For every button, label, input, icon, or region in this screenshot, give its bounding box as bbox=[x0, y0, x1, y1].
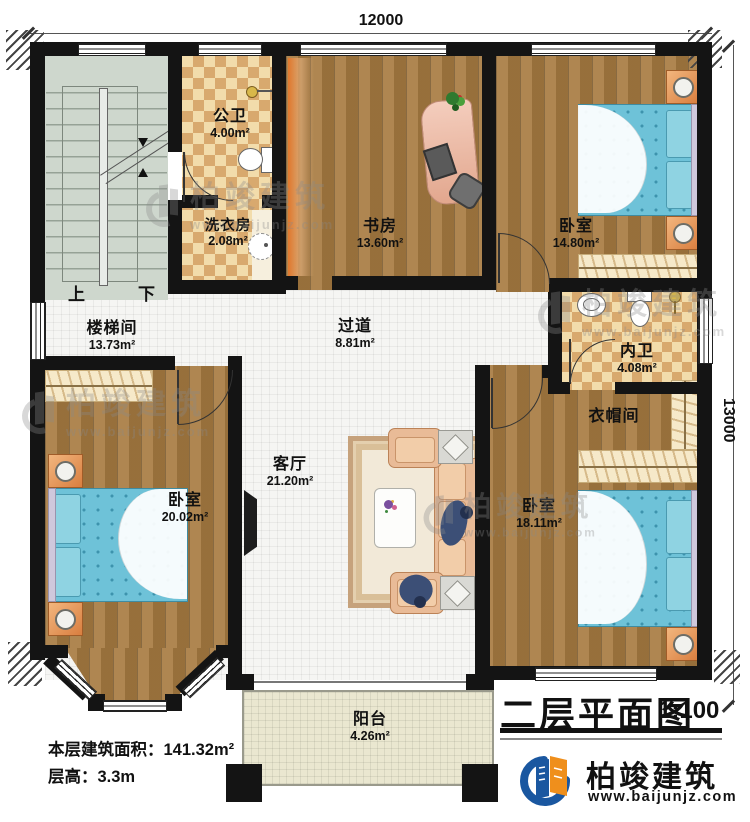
wall bbox=[165, 694, 182, 711]
lamp-icon bbox=[673, 223, 694, 244]
bed-se-pillow bbox=[666, 500, 693, 554]
corner-hatch bbox=[714, 650, 740, 684]
window bbox=[531, 43, 656, 56]
side-table bbox=[438, 430, 473, 464]
door-leaf bbox=[569, 339, 571, 383]
nightstand bbox=[48, 602, 83, 636]
watermark: 柏竣建筑www.baijunjz.com bbox=[538, 290, 726, 339]
watermark-logo-icon bbox=[146, 183, 182, 227]
stair-stringer bbox=[99, 88, 108, 286]
bed-se-pillow bbox=[666, 557, 693, 611]
wall bbox=[615, 382, 697, 394]
wall bbox=[562, 382, 570, 394]
bed-w-pillow bbox=[54, 547, 81, 597]
room-label-bedroom-ne: 卧室14.80m² bbox=[553, 218, 600, 250]
dimension-line-right bbox=[733, 45, 734, 705]
window bbox=[78, 43, 146, 56]
drawing-scale: 1:100 bbox=[658, 697, 719, 725]
person-head bbox=[414, 596, 426, 608]
dimension-top-value: 12000 bbox=[359, 12, 404, 30]
wall bbox=[542, 365, 562, 378]
cloakroom-rack-bottom bbox=[578, 450, 699, 483]
watermark: 柏竣建筑www.baijunjz.com bbox=[146, 183, 334, 232]
door-leaf bbox=[498, 233, 500, 283]
room-label-hallway: 过道8.81m² bbox=[335, 318, 375, 350]
watermark: 柏竣建筑www.baijunjz.com bbox=[424, 494, 597, 539]
column bbox=[462, 764, 498, 802]
floor-height-text: 层高：3.3m bbox=[48, 763, 135, 787]
lamp-icon bbox=[55, 609, 76, 630]
toilet-bowl-icon bbox=[238, 148, 263, 171]
room-label-balcony: 阳台4.26m² bbox=[350, 711, 390, 743]
brand-website: www.baijunjz.com bbox=[588, 789, 737, 805]
brand-logo-icon bbox=[514, 750, 576, 808]
nightstand bbox=[666, 627, 699, 661]
floor-plan-canvas: 上 下 bbox=[0, 0, 750, 822]
bed-ne-pillow bbox=[666, 161, 693, 209]
study-sideboard-glow bbox=[288, 58, 314, 276]
wall bbox=[466, 674, 494, 690]
wall bbox=[30, 356, 175, 370]
table-flowers-icon bbox=[384, 500, 393, 509]
window bbox=[198, 43, 262, 56]
bed-w-headboard bbox=[48, 488, 56, 602]
room-label-study: 书房13.60m² bbox=[357, 218, 404, 250]
wall bbox=[226, 674, 254, 690]
washing-machine-icon bbox=[248, 233, 275, 260]
door-leaf bbox=[491, 378, 493, 428]
room-label-bedroom-w: 卧室20.02m² bbox=[162, 492, 209, 524]
lamp-icon bbox=[673, 634, 694, 655]
window bbox=[103, 700, 167, 712]
title-underline-thin bbox=[500, 738, 722, 740]
stair-arrow-down-icon bbox=[138, 138, 148, 147]
wall bbox=[697, 56, 712, 680]
armchair-top bbox=[388, 428, 442, 468]
bath-lamp-icon bbox=[246, 86, 258, 98]
column bbox=[226, 764, 262, 802]
wall bbox=[182, 280, 272, 294]
dimension-line-top bbox=[30, 33, 712, 34]
side-table bbox=[440, 576, 475, 610]
washer-knob bbox=[264, 243, 268, 247]
plant-icon bbox=[446, 92, 459, 105]
wall bbox=[482, 56, 496, 290]
wall bbox=[168, 56, 182, 152]
lamp-icon bbox=[55, 461, 76, 482]
dimension-right-value: 13000 bbox=[719, 398, 737, 443]
stair-arrow-up-icon bbox=[138, 168, 148, 177]
window bbox=[300, 43, 447, 56]
floor-area-text: 本层建筑面积：141.32m² bbox=[48, 736, 234, 760]
watermark-logo-icon bbox=[424, 494, 457, 534]
wall bbox=[228, 356, 242, 676]
wall bbox=[216, 645, 242, 658]
nightstand bbox=[666, 216, 699, 250]
room-label-public-bath: 公卫4.00m² bbox=[210, 108, 250, 140]
balcony-threshold bbox=[254, 681, 466, 683]
watermark-logo-icon bbox=[22, 390, 58, 434]
nightstand bbox=[666, 70, 699, 104]
wall bbox=[272, 56, 286, 294]
room-label-ensuite: 内卫4.08m² bbox=[617, 343, 657, 375]
table-pattern bbox=[442, 434, 469, 461]
stair-down-label: 下 bbox=[138, 280, 155, 305]
bed-ne-pillow bbox=[666, 110, 693, 158]
lamp-icon bbox=[673, 77, 694, 98]
watermark-logo-icon bbox=[538, 290, 574, 334]
tv-icon bbox=[244, 490, 257, 556]
coffee-table bbox=[374, 488, 416, 548]
nightstand bbox=[48, 454, 83, 488]
wall bbox=[332, 276, 482, 290]
room-label-stair-hall: 楼梯间13.73m² bbox=[86, 320, 137, 352]
wall bbox=[286, 276, 298, 290]
watermark: 柏竣建筑www.baijunjz.com bbox=[22, 390, 210, 439]
stair-up-label: 上 bbox=[68, 280, 85, 305]
bed-w-pillow bbox=[54, 494, 81, 544]
room-label-living-room: 客厅21.20m² bbox=[267, 456, 314, 488]
room-label-cloakroom: 衣帽间 bbox=[588, 408, 639, 426]
table-pattern bbox=[444, 580, 471, 607]
window bbox=[30, 302, 46, 360]
dimension-tick bbox=[722, 699, 735, 712]
window bbox=[535, 667, 657, 681]
